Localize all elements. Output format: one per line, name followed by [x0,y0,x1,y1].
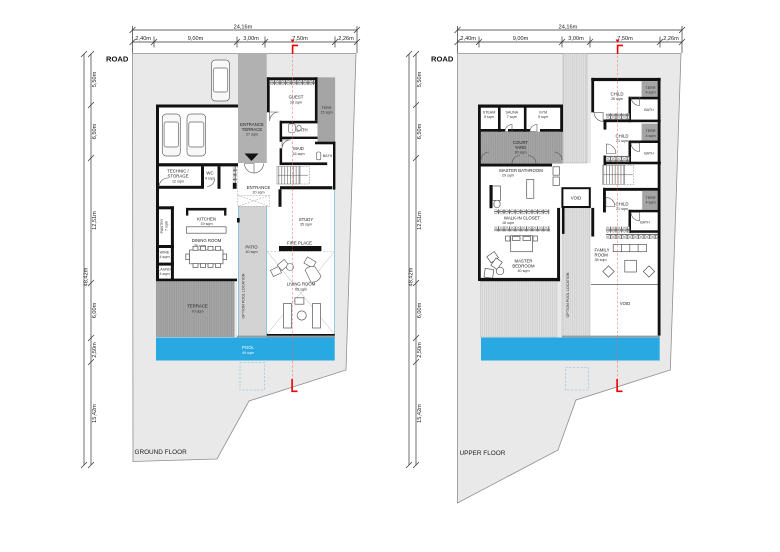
svg-text:ROAD: ROAD [431,55,454,64]
svg-text:9,00m: 9,00m [513,36,529,42]
svg-text:7 sqm: 7 sqm [165,221,169,231]
svg-text:28 sqm: 28 sqm [290,100,302,104]
svg-text:ROOM: ROOM [595,252,609,257]
svg-text:9 sqm: 9 sqm [538,115,548,119]
svg-text:BATH: BATH [323,154,333,158]
svg-text:6,00m: 6,00m [417,302,423,318]
svg-text:OPTION POOL LOCATION: OPTION POOL LOCATION [566,272,570,317]
svg-text:19 sqm: 19 sqm [200,222,212,226]
svg-text:24,16m: 24,16m [559,24,578,30]
svg-text:40 sqm: 40 sqm [517,269,529,273]
svg-text:3,00m: 3,00m [568,36,584,42]
svg-text:30 sqm: 30 sqm [514,150,526,154]
svg-text:5,50m: 5,50m [92,71,98,87]
svg-text:38 sqm: 38 sqm [595,258,607,262]
svg-text:TERRACE: TERRACE [187,304,208,309]
svg-text:12,51m: 12,51m [417,211,423,230]
svg-text:KITCHEN: KITCHEN [197,217,216,222]
svg-text:48,42m: 48,42m [409,267,415,286]
svg-text:TERR: TERR [645,129,655,133]
svg-text:6,00m: 6,00m [92,302,98,318]
svg-text:TERR: TERR [645,86,655,90]
svg-text:4 sqm: 4 sqm [159,272,169,276]
svg-text:2,40m: 2,40m [135,36,151,42]
svg-text:OPTION POOL LOCATION: OPTION POOL LOCATION [242,273,246,318]
svg-text:TERRACE: TERRACE [242,127,263,132]
svg-text:VOID: VOID [620,301,631,306]
svg-text:LAUND: LAUND [158,268,171,272]
svg-text:VOID: VOID [571,196,582,201]
svg-text:WINE: WINE [160,251,170,255]
svg-text:2,26m: 2,26m [663,36,679,42]
svg-text:CHILD: CHILD [611,92,624,97]
svg-text:SAUNA: SAUNA [505,111,518,115]
svg-text:TERR: TERR [645,196,655,200]
svg-text:ROAD: ROAD [106,55,129,64]
svg-text:DINING ROOM: DINING ROOM [192,238,222,243]
svg-text:35 sqm: 35 sqm [300,223,312,227]
svg-text:26 sqm: 26 sqm [611,97,623,101]
svg-text:2,50m: 2,50m [417,342,423,358]
svg-text:BATH: BATH [644,151,654,155]
svg-text:7,50m: 7,50m [292,36,308,42]
svg-text:4 sqm: 4 sqm [645,200,655,204]
svg-text:6,50m: 6,50m [417,123,423,139]
svg-text:PATIO: PATIO [245,244,258,249]
svg-text:TERR: TERR [321,106,331,110]
svg-text:7,50m: 7,50m [617,36,633,42]
svg-text:MASTER BATHROOM: MASTER BATHROOM [499,168,543,173]
svg-text:29 sqm: 29 sqm [502,174,514,178]
svg-text:24,16m: 24,16m [234,24,253,30]
svg-text:PANTRY: PANTRY [160,218,164,233]
svg-text:48,42m: 48,42m [84,267,90,286]
svg-text:BATH: BATH [640,220,650,224]
svg-text:GROUND FLOOR: GROUND FLOOR [135,449,188,456]
svg-text:5 sqm: 5 sqm [484,115,494,119]
svg-text:YARD: YARD [515,145,527,150]
svg-text:49 sqm: 49 sqm [242,351,254,355]
svg-text:40 sqm: 40 sqm [245,250,257,254]
svg-text:POOL: POOL [242,345,255,350]
svg-text:4 sqm: 4 sqm [205,176,215,180]
svg-text:7 sqm: 7 sqm [507,115,517,119]
svg-text:3,00m: 3,00m [243,36,259,42]
svg-text:WALK-IN CLOSET: WALK-IN CLOSET [504,215,541,220]
svg-text:FIRE PLACE: FIRE PLACE [287,241,312,246]
svg-text:2,40m: 2,40m [460,36,476,42]
svg-text:12 sqm: 12 sqm [172,179,184,183]
svg-text:STEAM: STEAM [483,111,496,115]
svg-text:STUDY: STUDY [299,217,314,222]
svg-text:20 sqm: 20 sqm [252,191,264,195]
svg-text:65 sqm: 65 sqm [295,287,307,291]
svg-text:STORAGE: STORAGE [168,174,189,179]
svg-text:5,50m: 5,50m [417,71,423,87]
svg-text:12,51m: 12,51m [92,211,98,230]
svg-text:MAID: MAID [293,146,304,151]
svg-text:15,42m: 15,42m [92,404,98,423]
svg-text:4 sqm: 4 sqm [645,134,655,138]
svg-text:2,50m: 2,50m [92,342,98,358]
svg-text:70 sqm: 70 sqm [191,310,203,314]
svg-text:LIVING ROOM: LIVING ROOM [287,282,316,287]
svg-text:6,50m: 6,50m [92,123,98,139]
svg-text:WC: WC [206,171,213,176]
svg-text:UPPER FLOOR: UPPER FLOOR [460,450,506,457]
svg-text:9,00m: 9,00m [188,36,204,42]
svg-text:27 sqm: 27 sqm [246,132,258,136]
svg-text:4 sqm: 4 sqm [159,255,169,259]
svg-text:18 sqm: 18 sqm [502,221,514,225]
svg-text:GYM: GYM [539,111,547,115]
svg-text:ENTRANCE: ENTRANCE [247,185,271,190]
svg-text:15 sqm: 15 sqm [320,111,332,115]
svg-text:4 sqm: 4 sqm [645,90,655,94]
svg-text:BATH: BATH [644,108,654,112]
svg-text:GUEST: GUEST [289,95,304,100]
svg-text:15,42m: 15,42m [417,404,423,423]
svg-text:16 sqm: 16 sqm [292,152,304,156]
svg-text:BEDROOM: BEDROOM [512,263,535,268]
svg-text:2,26m: 2,26m [338,36,354,42]
